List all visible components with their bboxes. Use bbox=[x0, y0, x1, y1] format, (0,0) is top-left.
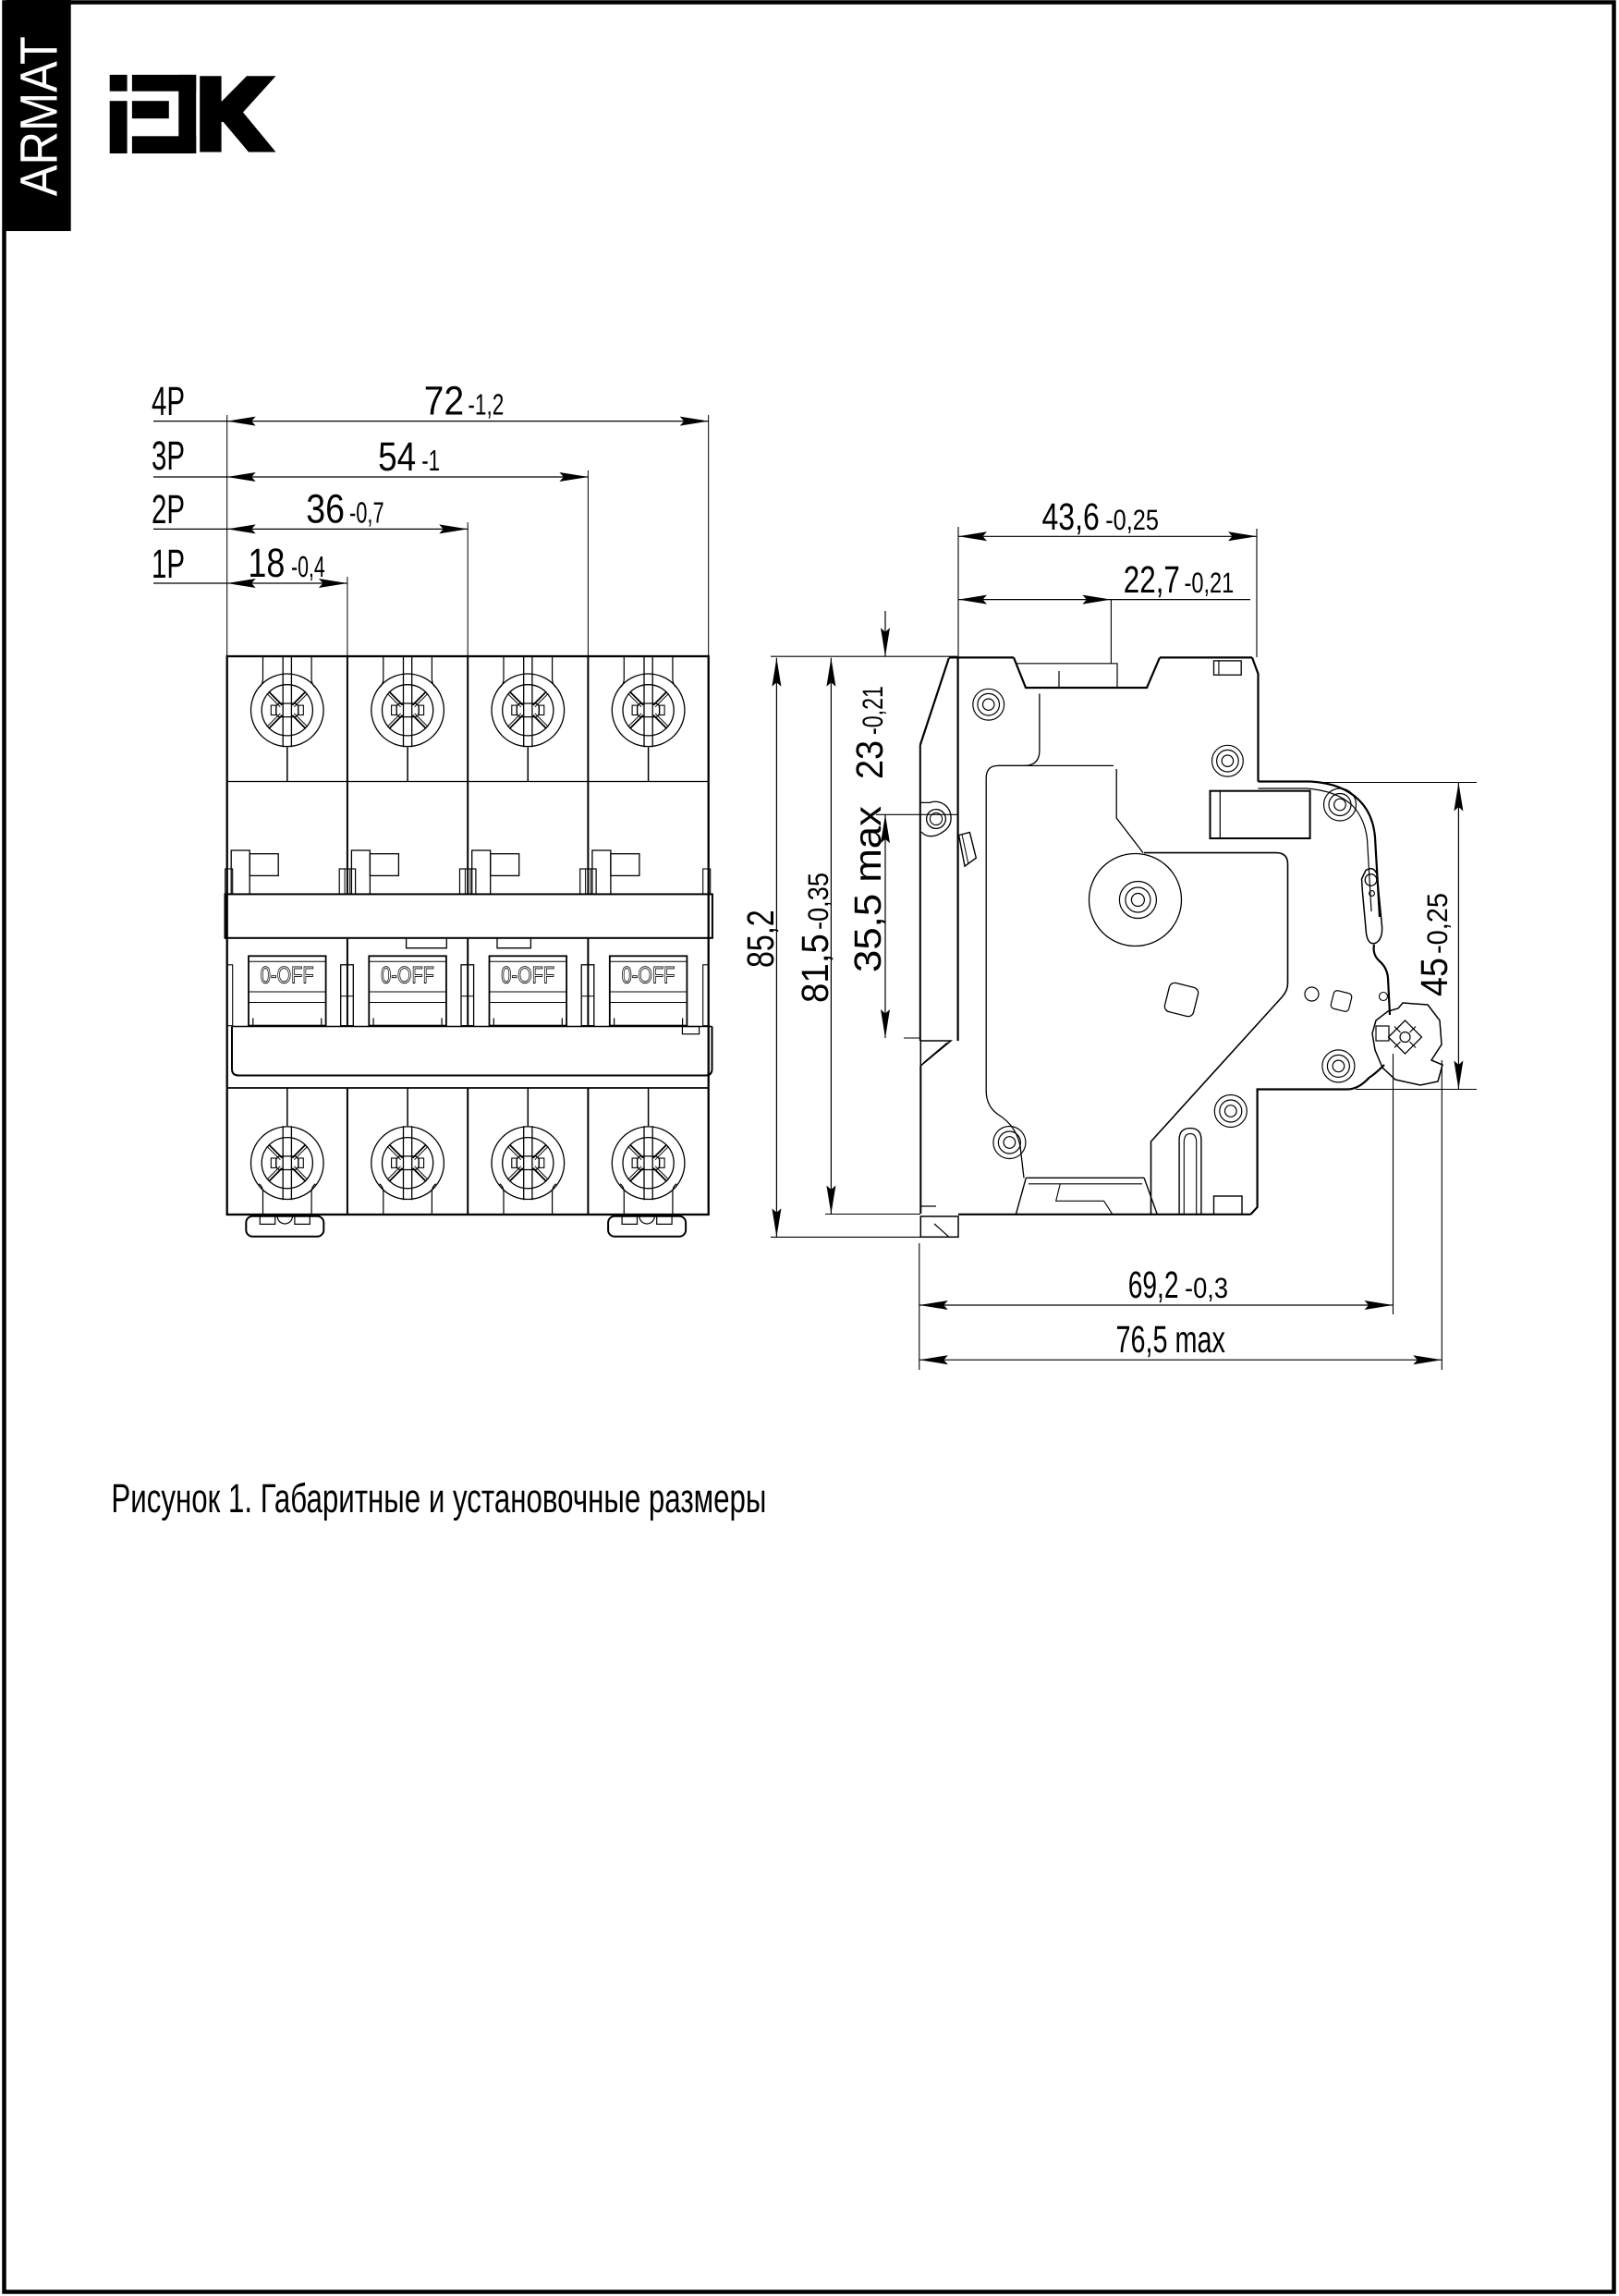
svg-text:0-OFF: 0-OFF bbox=[622, 963, 676, 989]
svg-text:-1,2: -1,2 bbox=[468, 388, 504, 421]
svg-text:1P: 1P bbox=[152, 542, 185, 587]
svg-text:23: 23 bbox=[848, 740, 891, 779]
svg-text:35,5 max: 35,5 max bbox=[846, 805, 889, 972]
svg-text:3P: 3P bbox=[152, 434, 185, 479]
svg-text:2P: 2P bbox=[152, 487, 185, 532]
svg-text:-0,21: -0,21 bbox=[857, 686, 889, 735]
svg-text:0-OFF: 0-OFF bbox=[381, 963, 434, 989]
svg-text:81,5: 81,5 bbox=[794, 934, 836, 1003]
svg-text:4P: 4P bbox=[152, 379, 185, 424]
svg-text:Рисунок 1. Габаритные и устано: Рисунок 1. Габаритные и установочные раз… bbox=[111, 1476, 766, 1521]
svg-text:-0,25: -0,25 bbox=[1105, 504, 1159, 536]
svg-text:76,5 max: 76,5 max bbox=[1116, 1318, 1226, 1361]
svg-text:-0,35: -0,35 bbox=[802, 873, 834, 930]
svg-text:-0,7: -0,7 bbox=[349, 495, 384, 529]
svg-text:22,7: 22,7 bbox=[1124, 558, 1180, 601]
svg-text:-1: -1 bbox=[421, 444, 440, 477]
svg-text:69,2: 69,2 bbox=[1128, 1264, 1179, 1306]
svg-text:ARMAT: ARMAT bbox=[10, 36, 69, 196]
svg-text:-0,4: -0,4 bbox=[291, 550, 325, 583]
svg-text:-0,25: -0,25 bbox=[1421, 893, 1454, 954]
svg-text:0-OFF: 0-OFF bbox=[261, 963, 314, 989]
svg-text:-0,21: -0,21 bbox=[1185, 567, 1235, 599]
svg-text:43,6: 43,6 bbox=[1042, 495, 1100, 538]
svg-text:85,2: 85,2 bbox=[739, 910, 782, 968]
svg-text:45: 45 bbox=[1413, 958, 1455, 996]
svg-text:-0,3: -0,3 bbox=[1185, 1272, 1228, 1304]
svg-text:36: 36 bbox=[306, 486, 345, 531]
svg-text:54: 54 bbox=[378, 434, 416, 480]
svg-text:0-OFF: 0-OFF bbox=[501, 963, 554, 989]
svg-text:72: 72 bbox=[424, 379, 464, 424]
